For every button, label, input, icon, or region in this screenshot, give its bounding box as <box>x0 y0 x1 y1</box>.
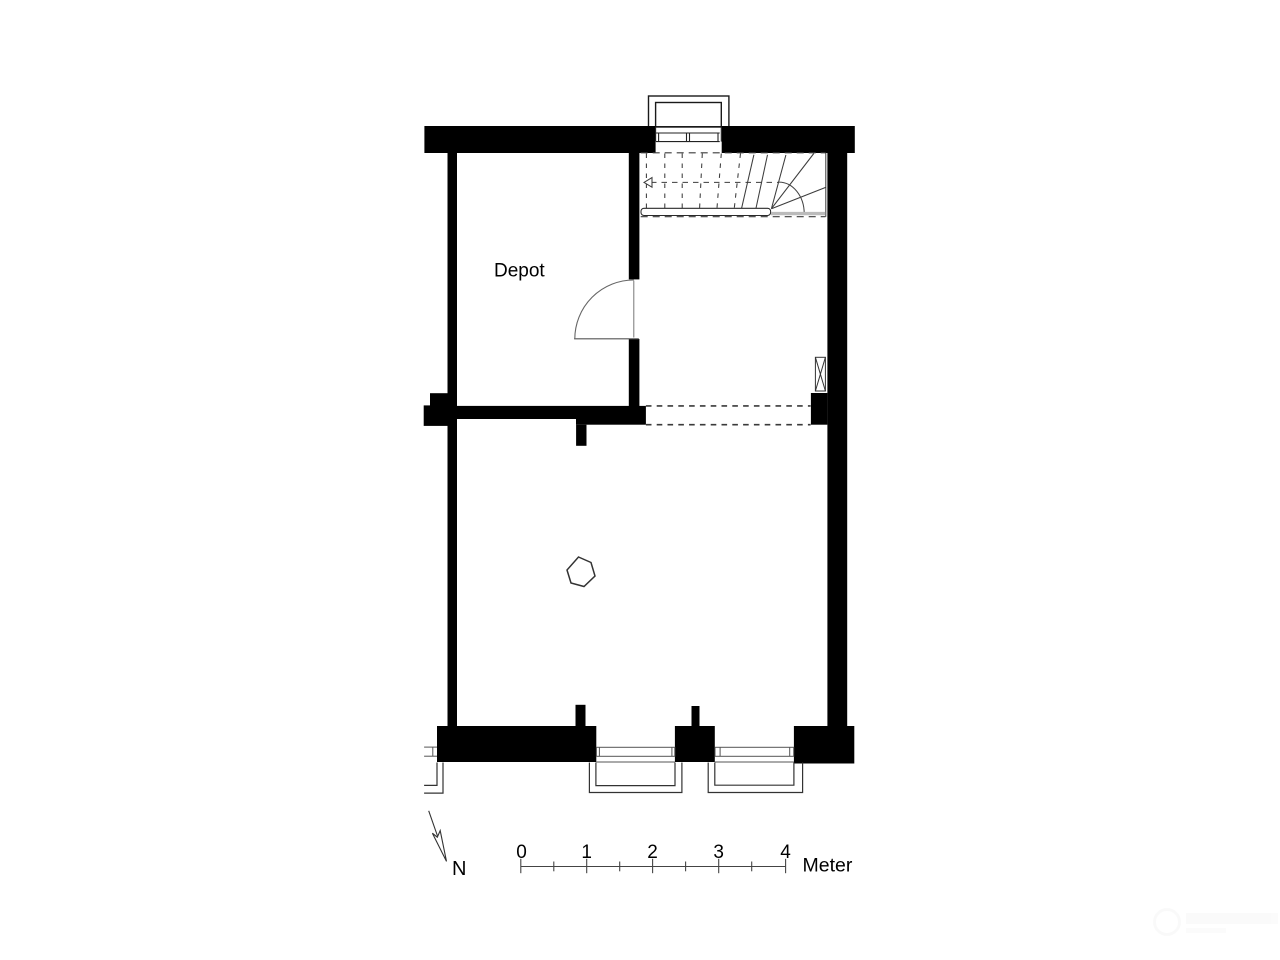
svg-text:4: 4 <box>780 842 791 863</box>
svg-text:Meter: Meter <box>803 855 853 877</box>
svg-text:N: N <box>452 858 466 880</box>
svg-text:3: 3 <box>713 842 724 863</box>
svg-text:0: 0 <box>516 842 527 863</box>
svg-text:Depot: Depot <box>494 261 545 282</box>
svg-text:1: 1 <box>581 842 592 863</box>
svg-text:2: 2 <box>647 842 658 863</box>
